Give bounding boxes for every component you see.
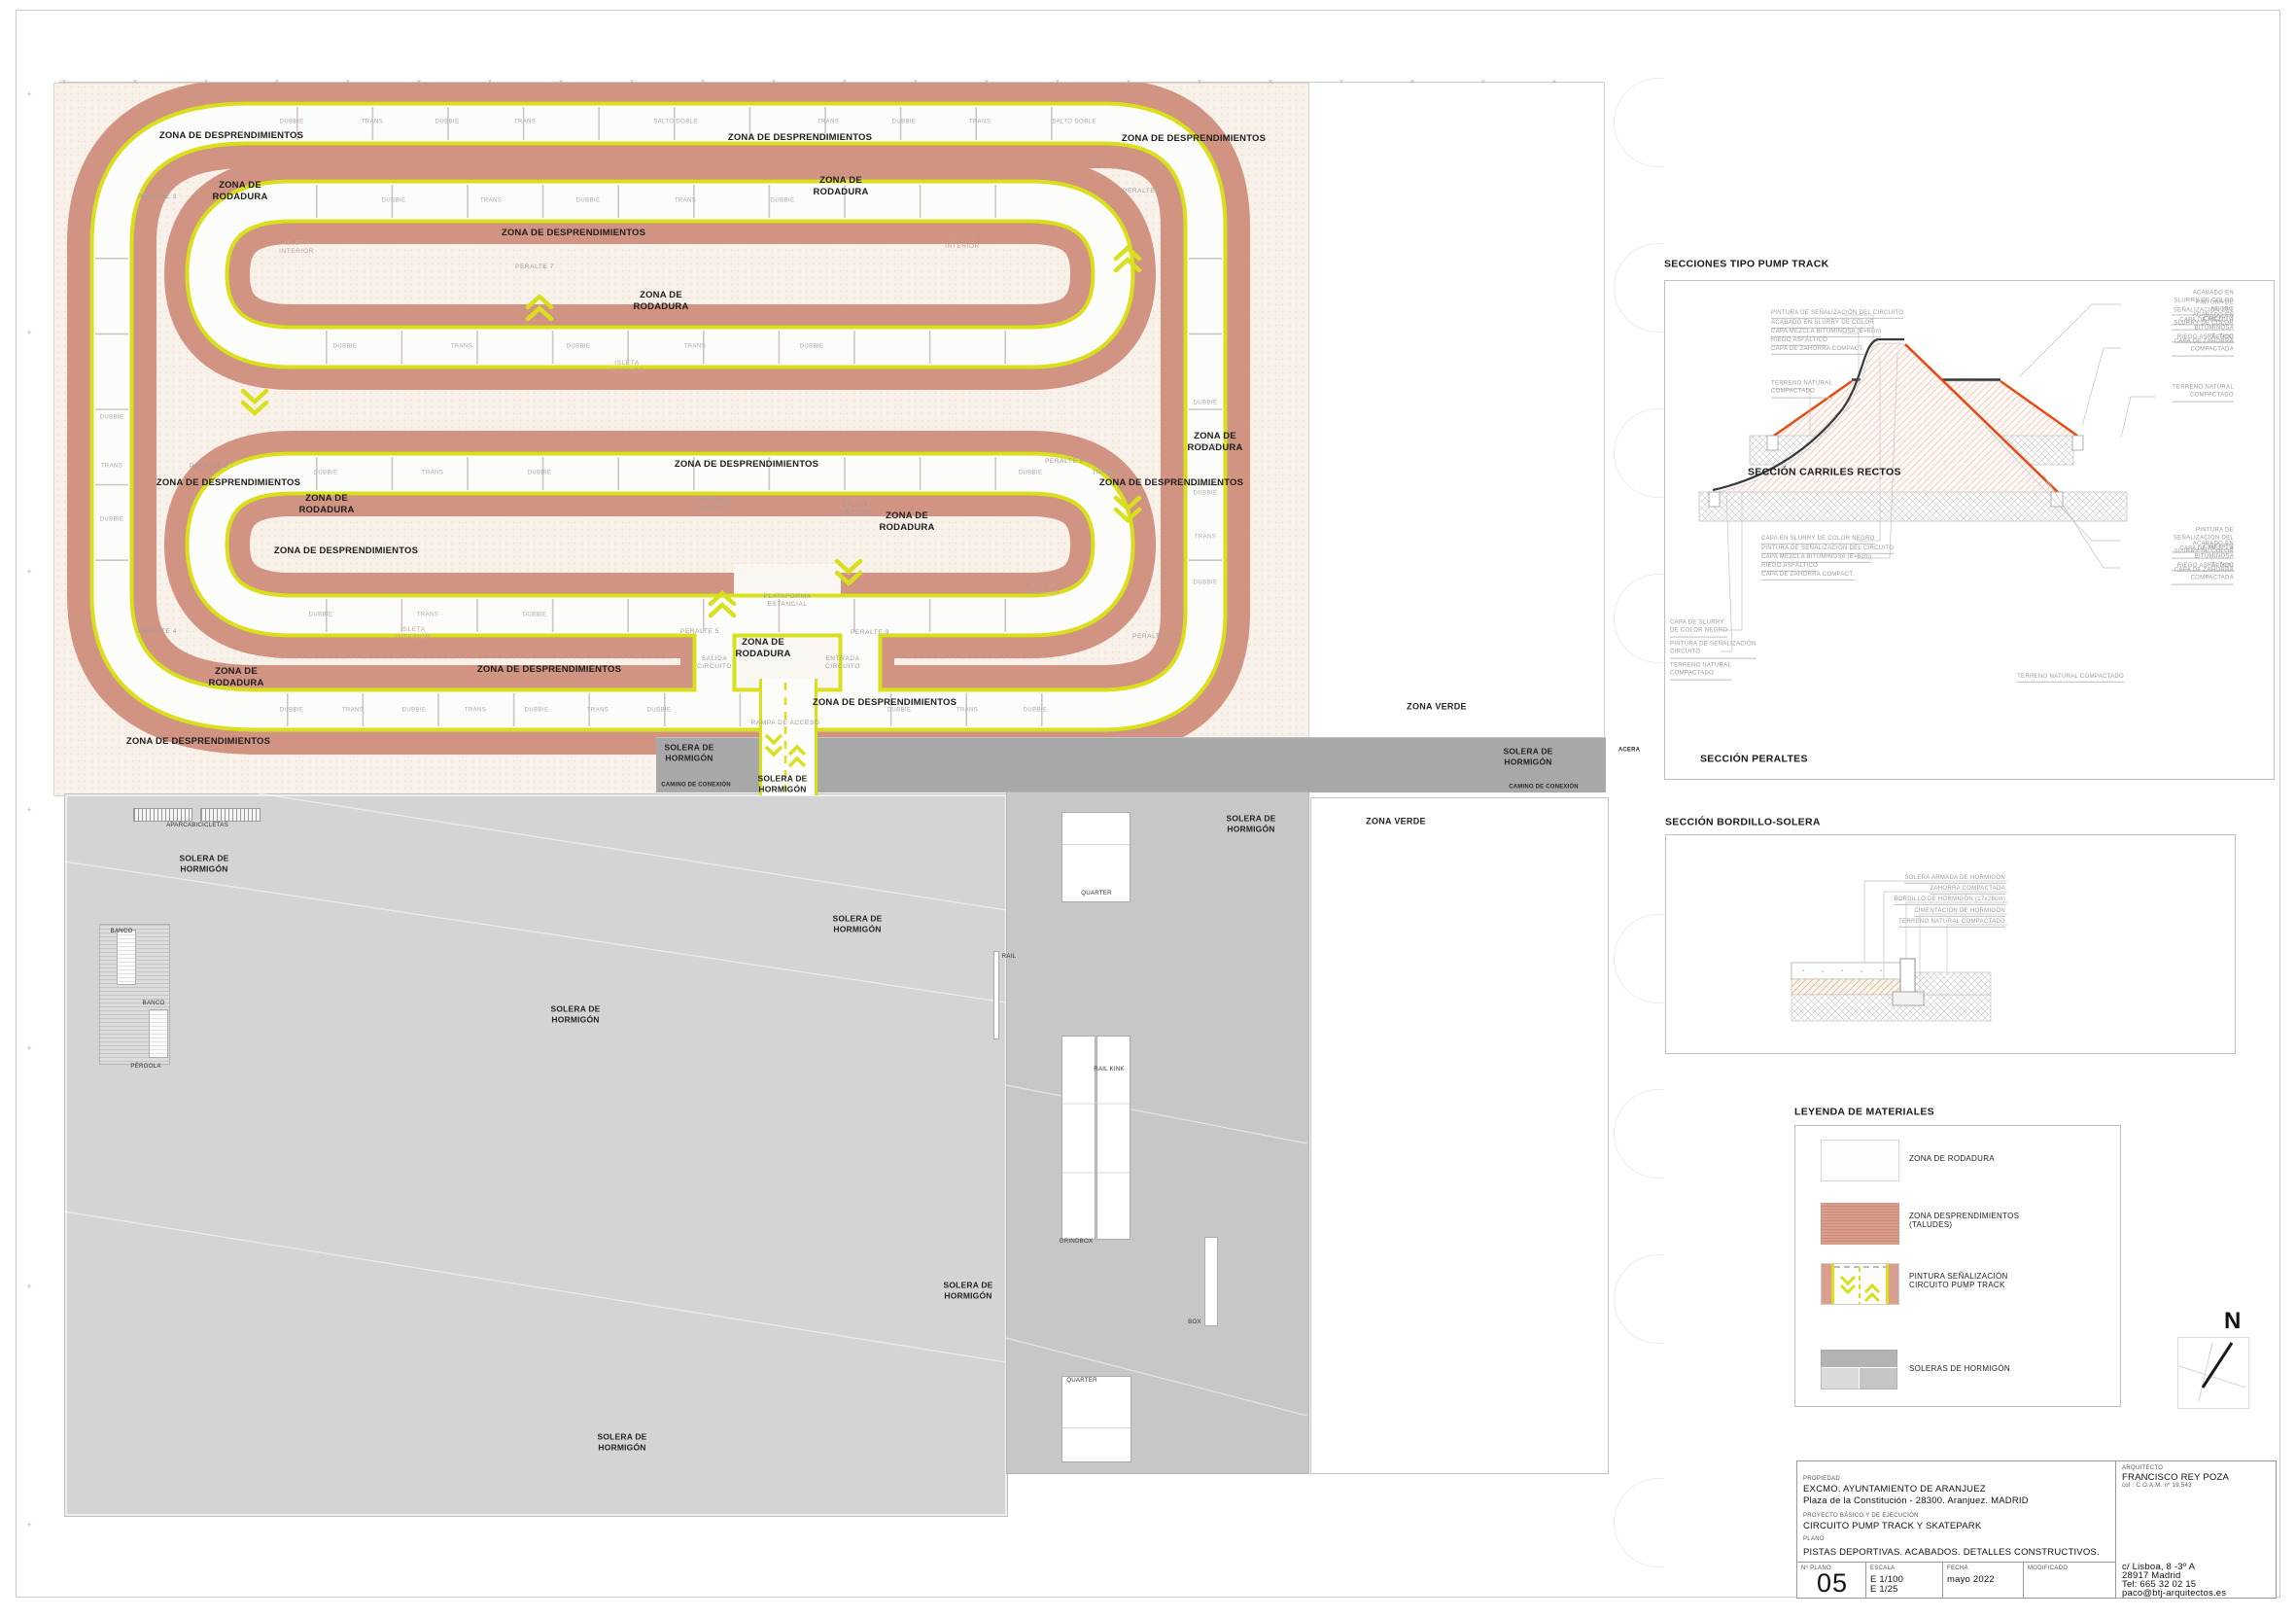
- bike-rack: [200, 808, 261, 822]
- fecha-label: FECHA: [1947, 1565, 1968, 1571]
- propiedad-address: Plaza de la Constitución - 28300. Aranju…: [1803, 1495, 2029, 1506]
- legend-label: PINTURA SEÑALIZACIÓN CIRCUITO PUMP TRACK: [1909, 1272, 2008, 1289]
- legend-swatch-rodadura: [1821, 1140, 1899, 1181]
- north-label: N: [2224, 1308, 2241, 1335]
- arquitecto-colegiado: col : C.O.A.M. nº 19.543: [2122, 1483, 2192, 1489]
- sidewalk-edge-line: [1604, 82, 1605, 739]
- site-boundary-line: [58, 82, 1604, 83]
- zona-verde-parcel: [1310, 797, 1609, 1474]
- legend-swatch-taludes: [1821, 1203, 1899, 1245]
- tree-circle: [1614, 574, 1664, 663]
- north-arrow: N: [2177, 1308, 2255, 1410]
- address-email: paco@btj-arquitectos.es: [2122, 1588, 2226, 1599]
- bench: [149, 1009, 168, 1058]
- legend-label: SOLERAS DE HORMIGÓN: [1909, 1364, 2010, 1373]
- drawing-sheet: { "sheet": {"bg": "#ffffff", "accent_yel…: [0, 0, 2296, 1618]
- pumptrack-drawing: [53, 83, 1307, 795]
- legend-swatch-pintura: [1821, 1263, 1899, 1305]
- legend-label: ZONA DESPRENDIMIENTOS (TALUDES): [1909, 1212, 2019, 1229]
- legend-swatch-soleras: [1821, 1350, 1897, 1389]
- tree-circle: [1614, 1254, 1664, 1344]
- tree-circle: [1614, 243, 1664, 333]
- legend-label: ZONA DE RODADURA: [1909, 1154, 1995, 1163]
- fecha-value: mayo 2022: [1947, 1574, 1995, 1585]
- arquitecto-name: FRANCISCO REY POZA: [2122, 1472, 2229, 1483]
- skate-rail: [993, 951, 999, 1039]
- arquitecto-label: ARQUITECTO: [2122, 1465, 2163, 1471]
- skate-rail-kink: [1061, 1036, 1096, 1240]
- skate-box: [1204, 1237, 1218, 1326]
- skate-quarter-bottom: [1061, 1376, 1131, 1462]
- title-block: PROPIEDAD EXCMO. AYUNTAMIENTO DE ARANJUE…: [1796, 1460, 2277, 1599]
- skate-quarter-top: [1061, 812, 1131, 902]
- proyecto-name: CIRCUITO PUMP TRACK Y SKATEPARK: [1803, 1521, 1981, 1531]
- bike-rack: [133, 808, 192, 822]
- tree-circle: [1614, 1478, 1664, 1567]
- ramp-markings: [762, 679, 809, 795]
- section-drawings: [1664, 280, 2273, 778]
- tree-circle: [1614, 78, 1664, 167]
- plano-name: PISTAS DEPORTIVAS. ACABADOS. DETALLES CO…: [1803, 1547, 2100, 1558]
- skate-grindbox: [1096, 1036, 1131, 1240]
- bordillo-drawing: [1665, 834, 2234, 1052]
- access-ramp: [759, 679, 818, 795]
- tree-circle: [1614, 1089, 1664, 1178]
- escala-label: ESCALA: [1870, 1565, 1895, 1571]
- propiedad-name: EXCMO. AYUNTAMIENTO DE ARANJUEZ: [1803, 1484, 1986, 1495]
- track-surface-white: [112, 123, 1205, 710]
- tree-circle: [1614, 914, 1664, 1003]
- proyecto-label: PROYECTO BÁSICO Y DE EJECUCIÓN: [1803, 1513, 1919, 1519]
- legend-panel: ZONA DE RODADURA ZONA DESPRENDIMIENTOS (…: [1794, 1125, 2121, 1407]
- plano-label: PLANO: [1803, 1536, 1825, 1542]
- pergola: [99, 924, 170, 1065]
- sheet-number: 05: [1817, 1568, 1848, 1599]
- modificado-label: MODIFICADO: [2028, 1565, 2068, 1571]
- tree-circle: [1614, 408, 1664, 498]
- bench: [117, 930, 136, 985]
- propiedad-label: PROPIEDAD: [1803, 1476, 1840, 1482]
- escala-2: E 1/25: [1870, 1584, 1898, 1595]
